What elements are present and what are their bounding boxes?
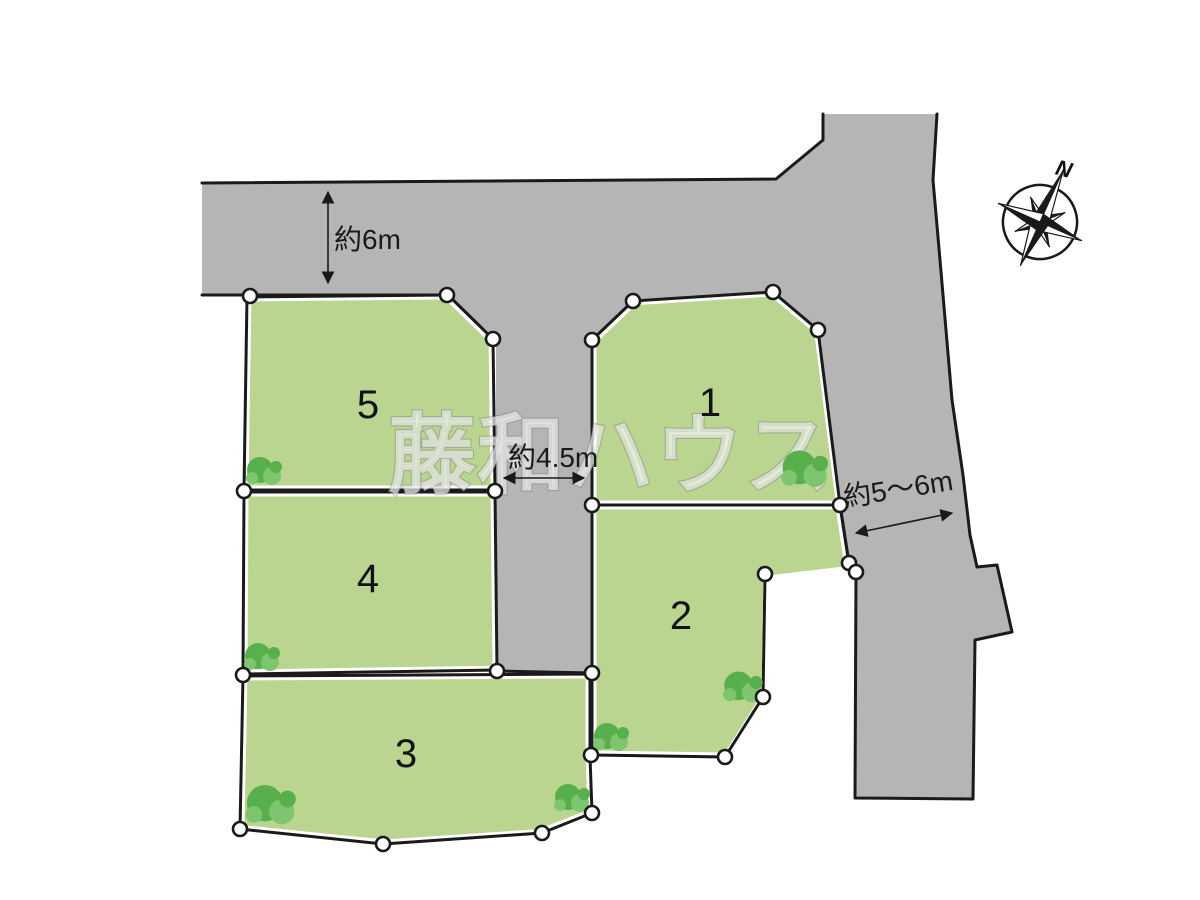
compass-point bbox=[994, 195, 1043, 230]
tree-blob bbox=[781, 470, 797, 486]
vertex-marker bbox=[585, 333, 599, 347]
dimension-label-center-road: 約4.5m bbox=[508, 442, 598, 473]
vertex-marker bbox=[756, 690, 770, 704]
tree-icon bbox=[246, 457, 282, 485]
road-edge bbox=[496, 671, 592, 673]
tree-blob bbox=[246, 472, 258, 484]
compass-north-label: N bbox=[1053, 155, 1076, 184]
vertex-marker bbox=[486, 332, 500, 346]
vertex-marker bbox=[233, 822, 247, 836]
tree-icon bbox=[593, 723, 629, 751]
road-edge bbox=[202, 114, 823, 183]
vertex-marker bbox=[585, 666, 599, 680]
tree-blob bbox=[268, 647, 280, 659]
compass-point bbox=[1012, 218, 1048, 269]
dimension-label-top-road: 約6m bbox=[334, 224, 401, 255]
vertex-marker bbox=[236, 668, 250, 682]
lot-label-2: 2 bbox=[670, 594, 692, 638]
vertex-marker bbox=[237, 484, 251, 498]
vertex-marker bbox=[585, 498, 599, 512]
vertex-marker bbox=[766, 285, 780, 299]
site-plan-canvas: 藤和ハウス 約6m 約4.5m 約5～6m 1 2 3 4 5 N bbox=[0, 0, 1200, 900]
lot-label-1: 1 bbox=[699, 381, 721, 425]
vertex-marker bbox=[243, 289, 257, 303]
watermark-text: 藤和ハウス bbox=[388, 406, 833, 505]
tree-blob bbox=[617, 727, 629, 739]
tree-blob bbox=[578, 788, 590, 800]
tree-blob bbox=[270, 461, 282, 473]
lot-label-4: 4 bbox=[357, 557, 379, 601]
tree-blob bbox=[279, 791, 296, 808]
tree-blob bbox=[245, 806, 262, 823]
vertex-marker bbox=[440, 288, 454, 302]
vertex-marker bbox=[488, 484, 502, 498]
tree-icon bbox=[554, 784, 590, 812]
lot-label-5: 5 bbox=[357, 383, 379, 427]
vertex-marker bbox=[376, 837, 390, 851]
vertex-marker bbox=[535, 826, 549, 840]
lot-2-ground bbox=[597, 510, 845, 753]
tree-blob bbox=[554, 799, 566, 811]
tree-blob bbox=[813, 456, 829, 472]
watermark-layer: 藤和ハウス bbox=[388, 406, 833, 505]
tree-icon bbox=[245, 785, 295, 824]
vertex-marker bbox=[811, 323, 825, 337]
vertex-marker bbox=[490, 664, 504, 678]
vertex-marker bbox=[758, 567, 772, 581]
tree-icon bbox=[244, 643, 280, 671]
vertex-marker bbox=[585, 806, 599, 820]
vertex-marker bbox=[626, 294, 640, 308]
tree-blob bbox=[750, 676, 763, 689]
tree-icon bbox=[781, 451, 828, 487]
tree-blob bbox=[723, 688, 736, 701]
compass-star bbox=[978, 150, 1105, 284]
vertex-marker bbox=[584, 748, 598, 762]
site-plan: 藤和ハウス 約6m 約4.5m 約5～6m 1 2 3 4 5 N bbox=[0, 0, 1200, 900]
vertex-marker bbox=[849, 565, 863, 579]
vertex-marker bbox=[718, 750, 732, 764]
compass-rose: N bbox=[978, 150, 1105, 284]
lot-label-3: 3 bbox=[395, 732, 417, 776]
